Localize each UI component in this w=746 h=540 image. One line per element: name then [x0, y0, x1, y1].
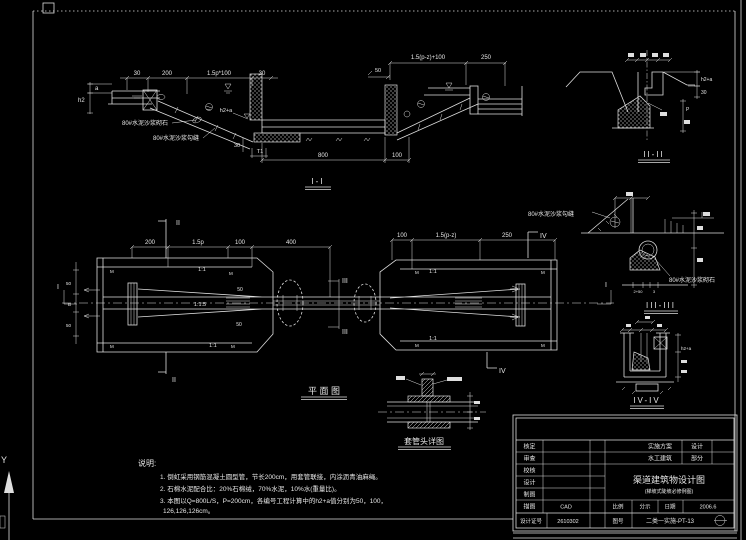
titleblock-row-label: 描图 — [523, 503, 535, 511]
dim-label: 200 — [145, 240, 156, 246]
titleblock-row-label: 审查 — [523, 455, 535, 463]
note-line: 1. 倒虹采用钢筋混凝土圆型管，节长200cm，用套管联接，内涂沥青油麻绳。 — [160, 472, 382, 481]
dim-label: 50 — [66, 323, 72, 328]
dim-label: 100 — [397, 233, 408, 239]
dim-label: P — [686, 107, 690, 113]
titleblock-row-label: 校核 — [523, 467, 535, 475]
slope-label: 1:1.5 — [194, 302, 206, 308]
micro-label — [660, 112, 667, 116]
scale-value: 分示 — [639, 503, 651, 511]
section-iv-iv: h2+a IV-IV — [616, 316, 692, 409]
dim-label: h2+a — [681, 346, 692, 351]
cert-label: 设计证号 — [520, 517, 543, 525]
drawing-title: 渠道建筑物设计图 — [633, 474, 705, 485]
section-title: III-III — [646, 301, 676, 310]
dim-label: 50 — [236, 322, 242, 328]
dim-label: B — [68, 302, 71, 307]
section-marker: II — [176, 220, 180, 227]
stage-value: 设计 — [691, 443, 703, 451]
dim-label: 1.5(p-z)+100 — [411, 55, 446, 61]
notes-heading: 说明: — [138, 458, 156, 468]
grout-label: 80#水泥沙浆勾缝 — [153, 134, 199, 142]
title-block: 核定 审查 校核 设计 制图 描图 CAD 设计证号 2610302 实施方案 … — [513, 415, 737, 538]
micro-label — [396, 376, 405, 380]
cert-value: 2610302 — [557, 519, 578, 525]
date-label: 日期 — [664, 504, 676, 511]
trace-value: CAD — [560, 505, 572, 511]
cad-drawing: Y 30 200 1.5p*100 30 a h2 h — [0, 0, 746, 540]
slope-label: 1:1 — [209, 343, 217, 349]
part-value: 部分 — [691, 455, 703, 463]
dim-label: 800 — [318, 153, 329, 159]
date-value: 2006.6 — [700, 505, 717, 511]
dim-label: 50 — [237, 287, 243, 293]
drawing-no-label: 图号 — [612, 517, 624, 525]
dim-label: a — [95, 86, 99, 92]
micro-label — [447, 377, 462, 381]
titleblock-row-label: 设计 — [523, 479, 535, 487]
dim-label: 30 — [134, 71, 141, 77]
tie-mark: M — [415, 270, 419, 275]
tie-mark: M — [110, 344, 114, 349]
dim-label: 200 — [162, 71, 173, 77]
section-marker: IV — [540, 233, 547, 240]
tie-mark: M — [229, 271, 233, 276]
dim-label: 3 — [653, 289, 656, 294]
drawing-no-value: 二类一实施-PT-13 — [646, 517, 695, 525]
section-i-i: 30 200 1.5p*100 30 a h2 h2+a 30 T1 — [78, 55, 522, 190]
dim-label: 1.5(p-z) — [436, 233, 457, 239]
dim-label: 30 — [701, 90, 707, 96]
dim-label: h2+a — [701, 77, 712, 83]
dim-label: 50 — [375, 68, 381, 74]
joint-detail: 套管头详图 — [378, 372, 486, 450]
tie-mark: M — [231, 344, 235, 349]
tie-mark: M — [415, 343, 419, 348]
section-marker: I — [605, 282, 607, 289]
note-line: 3. 本图以Q=800L/S，P=200cm，各编号工程计算中的h2+a值分别为… — [160, 496, 387, 505]
cad-canvas: Y 30 200 1.5p*100 30 a h2 h — [0, 0, 746, 540]
titleblock-row-label: 制图 — [523, 491, 535, 499]
plan-title: 平 面 图 — [308, 386, 340, 396]
ucs-arrow-icon — [4, 471, 14, 493]
tie-mark: M — [110, 269, 114, 274]
dim-label: 50 — [66, 281, 72, 286]
dim-label: 250 — [502, 233, 513, 239]
dim-label: h2 — [78, 98, 85, 104]
dim-label: h2+a — [220, 108, 233, 114]
dim-label: 100 — [235, 240, 246, 246]
section-marker: III — [342, 329, 348, 336]
dim-label: 1.5p*100 — [207, 71, 232, 77]
sheet-corner-mark — [43, 3, 54, 13]
section-ii-ii: h2+a 30 P II-II — [566, 50, 712, 163]
section-marker: IV — [499, 368, 506, 375]
ucs-y-label: Y — [1, 455, 7, 465]
section-marker: II — [172, 377, 176, 384]
dim-label: 2+50 — [633, 289, 643, 294]
slope-label: 1:1 — [429, 336, 437, 342]
dim-label: 100 — [392, 153, 403, 159]
ucs-icon: Y — [1, 455, 14, 540]
scale-label: 比例 — [612, 503, 624, 511]
dim-label: 1.5p — [192, 240, 204, 246]
titleblock-row-label: 核定 — [523, 443, 535, 451]
slope-label: 1:1 — [198, 267, 206, 273]
section-marker: I — [57, 284, 59, 291]
tie-mark: M — [541, 270, 545, 275]
note-line: 2. 石棉水泥配合比：20%石棉绒，70%水泥，10%水(重量比)。 — [160, 484, 341, 493]
tie-mark: M — [541, 343, 545, 348]
dim-label: 250 — [481, 55, 492, 61]
drawing-subtitle: (梯坡式陡坡必修例图) — [645, 488, 694, 495]
dim-label: 30 — [234, 143, 240, 149]
stage-label: 实施方案 — [648, 443, 672, 451]
grout-label: 80#水泥沙浆勾缝 — [528, 210, 574, 218]
slope-label: 1:1 — [429, 269, 437, 275]
notes: 说明: 1. 倒虹采用钢筋混凝土圆型管，节长200cm，用套管联接，内涂沥青油麻… — [138, 458, 387, 515]
section-title: I-I — [311, 177, 324, 186]
dim-label: 400 — [286, 240, 297, 246]
edge-mark — [0, 516, 5, 528]
plan-view: 1:1 1:1 1:1.5 50 50 M M M M 200 1.5p 100… — [57, 219, 614, 400]
part-label: 水工建筑 — [648, 455, 672, 463]
detail-title: 套管头详图 — [404, 436, 444, 446]
masonry-label: 80#水泥沙浆砌石 — [669, 276, 715, 284]
note-line: 126,126,126cm。 — [163, 508, 214, 515]
section-title: IV-IV — [633, 396, 660, 405]
section-marker: III — [342, 278, 348, 285]
masonry-label: 80#水泥沙浆砌石 — [122, 119, 168, 127]
section-title: II-II — [643, 150, 665, 159]
